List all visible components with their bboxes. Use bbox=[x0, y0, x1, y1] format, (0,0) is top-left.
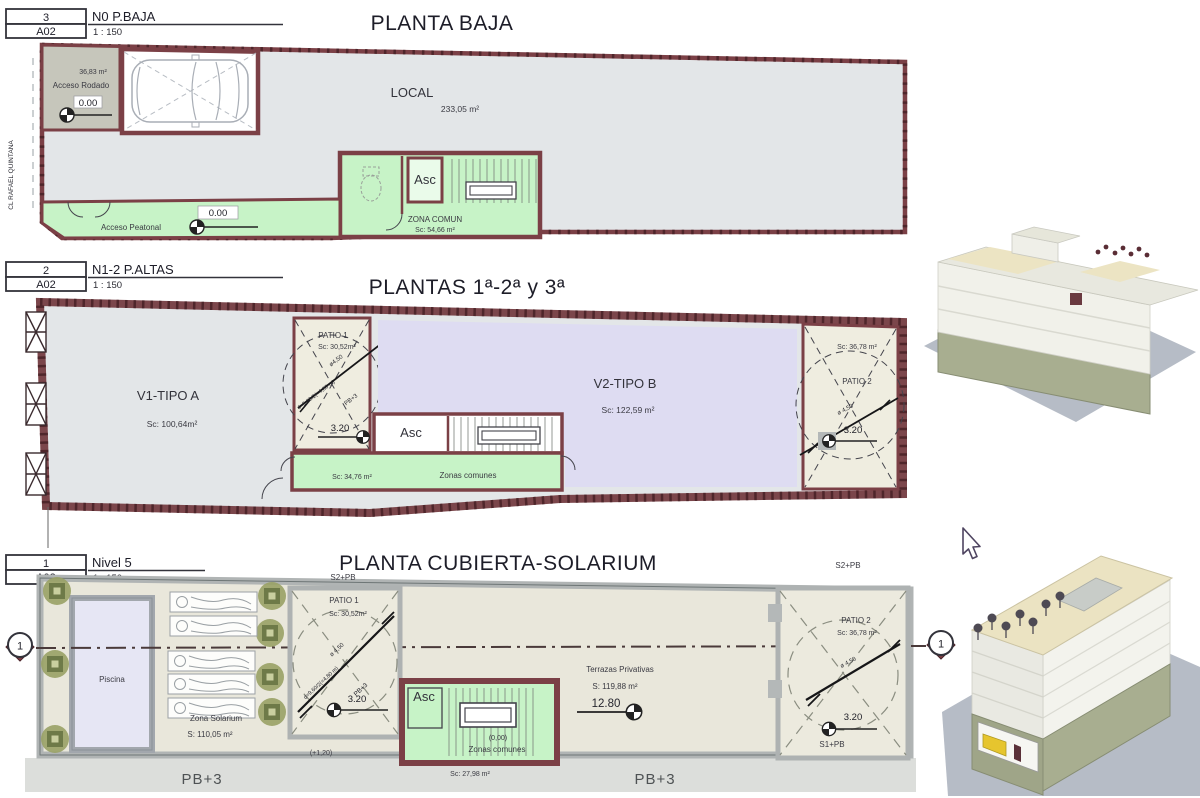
zona-solarium-label: Zona Solarium bbox=[190, 714, 242, 723]
detail-label: N0 P.BAJA bbox=[92, 9, 156, 24]
zonas-comunes-solarium: Asc (0,00) Zonas comunes bbox=[402, 681, 557, 763]
patio1-solarium: ø 4,50 d=9,60/2(=4,80 m) PB+3 PATIO 1 Sc… bbox=[290, 588, 400, 737]
patio2-solarium: ø 4,50 PATIO 2 Sc: 36,78 m² 3.20 S1+PB bbox=[768, 588, 908, 758]
acceso-peatonal-strip: Acceso Peatonal 0.00 bbox=[42, 199, 340, 238]
section-number: 1 bbox=[938, 639, 944, 651]
s2pb-left-label: S2+PB bbox=[330, 573, 355, 582]
detail-number: 2 bbox=[43, 265, 49, 277]
terrazas-area-label: S: 119,88 m² bbox=[592, 682, 638, 691]
section-number: 1 bbox=[17, 641, 23, 653]
benchmark-icon bbox=[327, 703, 340, 716]
piscina: Piscina bbox=[72, 598, 152, 750]
patio1-plus-level: (+1,20) bbox=[310, 750, 332, 757]
comunes-label: Zonas comunes bbox=[469, 745, 526, 754]
patio1-area-label: Sc: 30,52m² bbox=[329, 611, 367, 618]
sheet-number: A02 bbox=[36, 26, 56, 38]
patio2-area-label: Sc: 36,78 m² bbox=[837, 344, 877, 351]
v1-area-label: Sc: 100,64m² bbox=[147, 419, 198, 429]
pb3-left-label: PB+3 bbox=[181, 771, 222, 788]
benchmark-icon bbox=[626, 704, 641, 719]
zona-comun-area: Sc: 54,66 m² bbox=[415, 227, 455, 234]
zona-comun-label: ZONA COMUN bbox=[408, 215, 462, 224]
render2-figure bbox=[1014, 744, 1021, 762]
benchmark-icon bbox=[190, 220, 204, 234]
duct-block bbox=[768, 604, 782, 622]
patio1-label: PATIO 1 bbox=[329, 596, 359, 605]
patio2-label: PATIO 2 bbox=[841, 616, 871, 625]
zona-solarium-area: S: 110,05 m² bbox=[187, 730, 233, 739]
piscina-label: Piscina bbox=[99, 675, 125, 684]
benchmark-icon bbox=[357, 431, 370, 444]
patio1-label: PATIO 1 bbox=[318, 331, 348, 340]
garage-level-value: 0.00 bbox=[79, 98, 98, 109]
comunes-area-label: Sc: 27,98 m² bbox=[450, 771, 490, 778]
plan-title-altas: PLANTAS 1ª-2ª y 3ª bbox=[369, 276, 566, 299]
comunes-area-label: Sc: 34,76 m² bbox=[332, 474, 372, 481]
render1-shaft bbox=[1070, 293, 1082, 305]
benchmark-icon bbox=[60, 108, 74, 122]
benchmark-icon bbox=[822, 722, 835, 735]
patio1-level-value: 3.20 bbox=[348, 694, 367, 705]
sun-loungers bbox=[168, 592, 257, 718]
acceso-peatonal-label: Acceso Peatonal bbox=[101, 223, 161, 232]
s2pb-right-label: S2+PB bbox=[835, 561, 860, 570]
left-balconies bbox=[26, 312, 46, 495]
peatonal-level-value: 0.00 bbox=[209, 208, 228, 219]
sheet-number: A02 bbox=[36, 279, 56, 291]
local-area-label: 233,05 m² bbox=[441, 104, 479, 114]
patio2-area-label: Sc: 36,78 m² bbox=[837, 630, 877, 637]
detail-number: 1 bbox=[43, 558, 49, 570]
v2-area-label: Sc: 122,59 m² bbox=[602, 405, 655, 415]
elevator-label: Asc bbox=[400, 425, 422, 440]
garage-area-label: 36,83 m² bbox=[79, 69, 107, 76]
zonas-comunes-altas: Sc: 34,76 m² Zonas comunes bbox=[281, 453, 575, 490]
plan-title-solarium: PLANTA CUBIERTA-SOLARIUM bbox=[339, 552, 657, 575]
detail-number: 3 bbox=[43, 12, 49, 24]
terrazas-level-value: 12.80 bbox=[592, 698, 621, 710]
comunes-label: Zonas comunes bbox=[440, 471, 497, 480]
plan-title-baja: PLANTA BAJA bbox=[371, 12, 514, 35]
detail-label: N1-2 P.ALTAS bbox=[92, 262, 174, 277]
patio1-area-label: Sc: 30,52m² bbox=[318, 344, 356, 351]
v1-label: V1-TIPO A bbox=[137, 388, 199, 403]
terrazas-label: Terrazas Privativas bbox=[586, 665, 654, 674]
patio2-altas: ø 4,50 Sc: 36,78 m² PATIO 2 3.20 bbox=[796, 324, 904, 489]
architectural-drawing-sheet: 3 N0 P.BAJA A02 1 : 150 PLANTA BAJA CL R… bbox=[0, 0, 1200, 798]
benchmark-icon bbox=[823, 435, 836, 448]
patio2-level-value: 3.20 bbox=[844, 425, 863, 436]
zona-comun-block: Asc ZONA COMUN Sc: 54,66 m² bbox=[340, 153, 540, 237]
patio2-level-value: 3.20 bbox=[844, 712, 863, 723]
garage-name-label: Acceso Rodado bbox=[53, 81, 110, 90]
duct-block bbox=[768, 680, 782, 698]
plan-cubierta-solarium: 1 Nivel 5 A02 1 : 150 PLANTA CUBIERTA-SO… bbox=[6, 552, 955, 792]
drawing-canvas: 3 N0 P.BAJA A02 1 : 150 PLANTA BAJA CL R… bbox=[0, 0, 1200, 798]
scale-label: 1 : 150 bbox=[93, 27, 122, 38]
elevator-label: Asc bbox=[413, 689, 435, 704]
patio1-level-value: 3.20 bbox=[331, 423, 350, 434]
pb3-right-label: PB+3 bbox=[634, 771, 675, 788]
parking-bay bbox=[122, 49, 258, 133]
elevator-label: Asc bbox=[414, 172, 436, 187]
stairs-asc-block-altas: Asc bbox=[374, 414, 562, 453]
detail-label: Nivel 5 bbox=[92, 555, 132, 570]
local-label: LOCAL bbox=[391, 85, 434, 100]
v2-label: V2-TIPO B bbox=[594, 376, 657, 391]
street-name-label: CL RAFAEL QUINTANA bbox=[8, 140, 15, 210]
scale-label: 1 : 150 bbox=[93, 280, 122, 291]
patio2-label: PATIO 2 bbox=[842, 377, 872, 386]
s1pb-label: S1+PB bbox=[819, 740, 844, 749]
comunes-zero-level: (0,00) bbox=[489, 735, 507, 742]
